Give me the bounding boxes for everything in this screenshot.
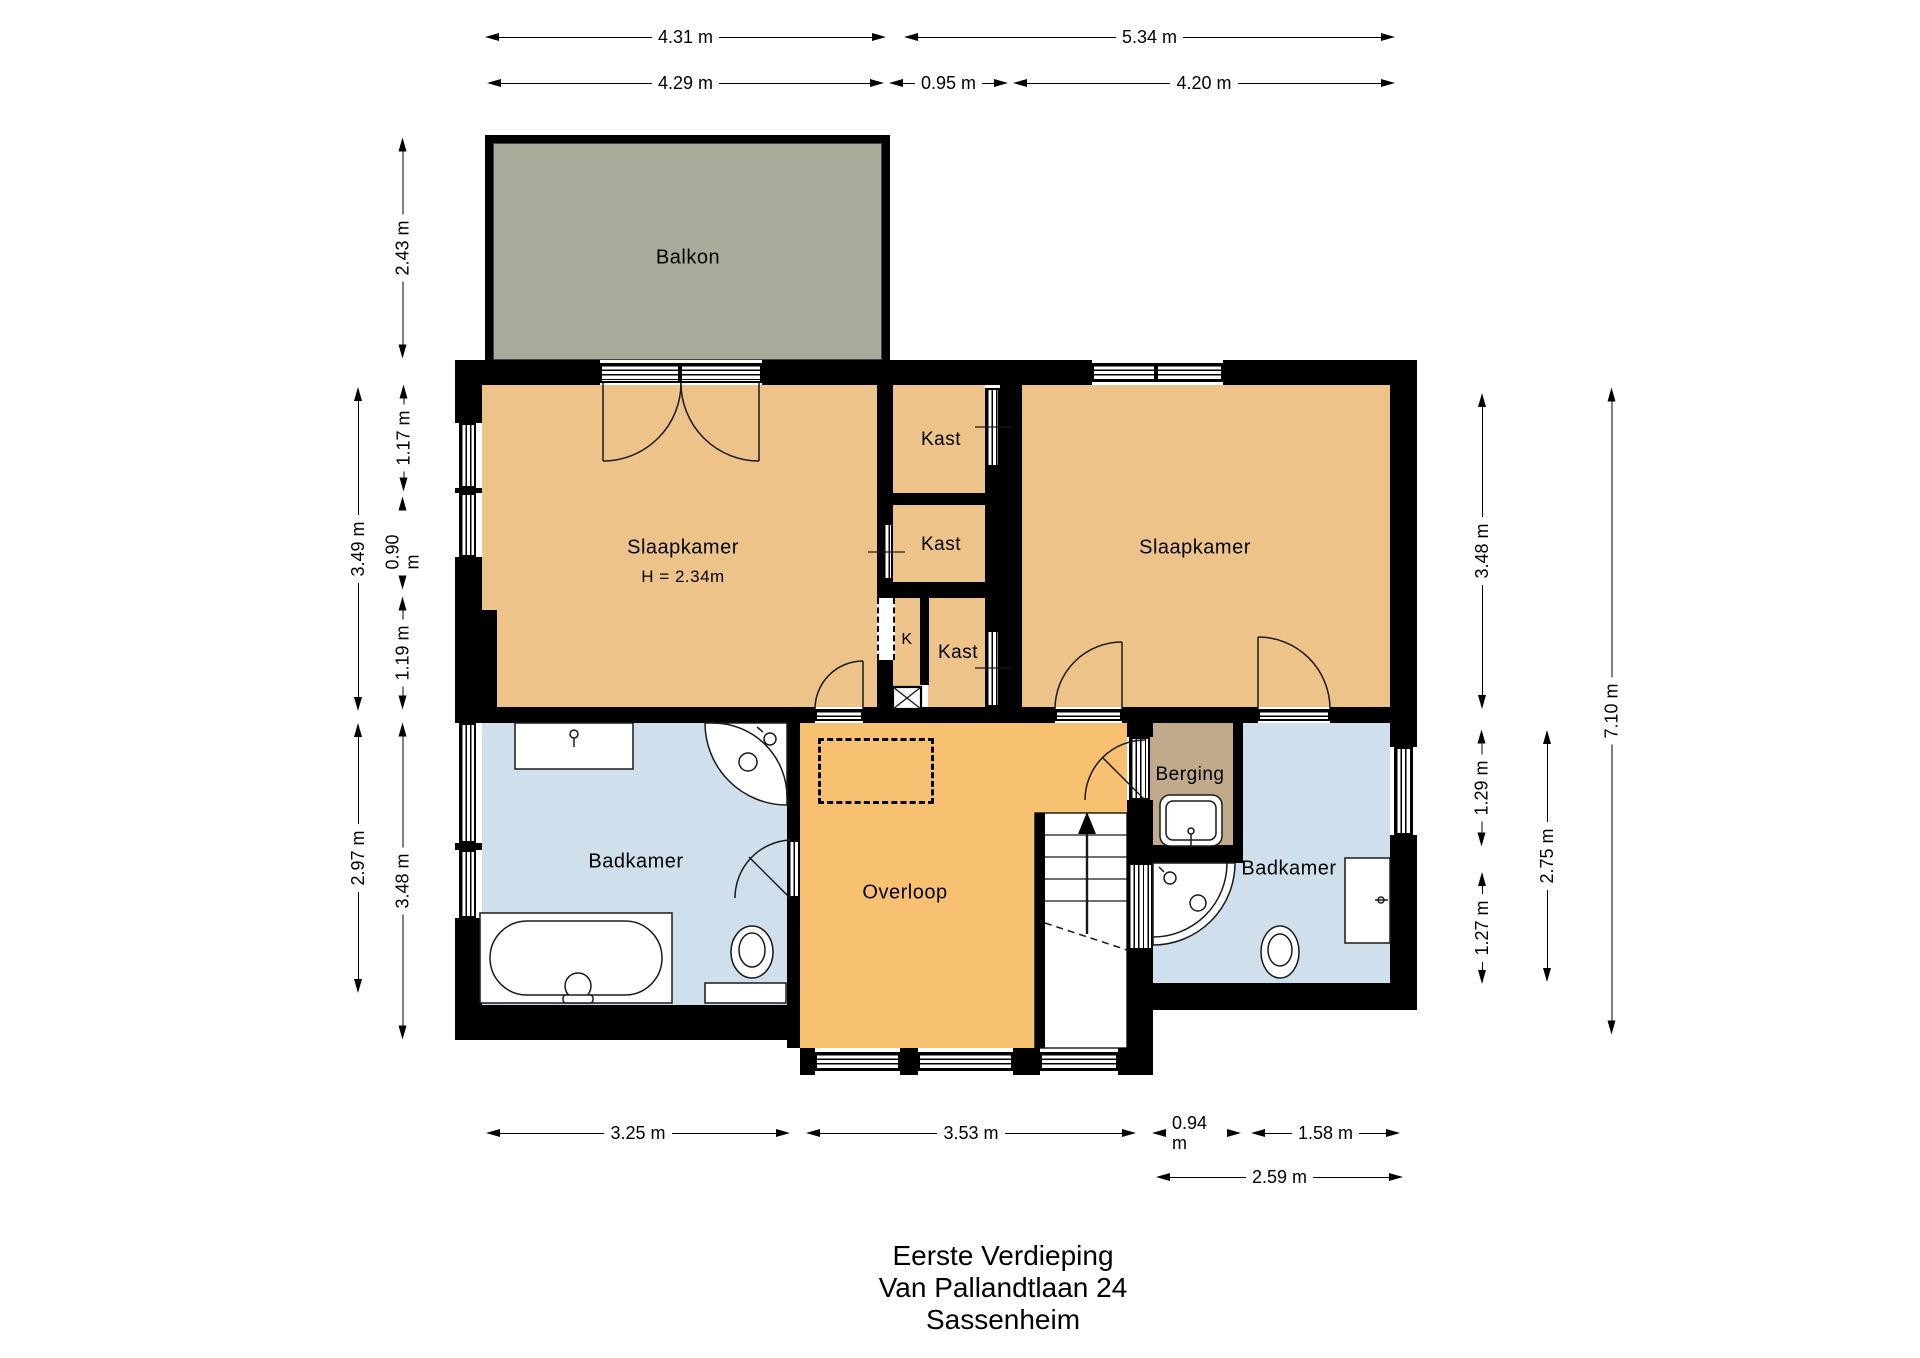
title-line-floor: Eerste Verdieping [879, 1240, 1128, 1272]
label-kast-2: Kast [921, 534, 961, 556]
label-berging: Berging [1156, 764, 1225, 786]
title-line-address: Van Pallandtlaan 24 [879, 1272, 1128, 1304]
dim-left-1-19: 1.19 m [393, 597, 413, 710]
title-line-city: Sassenheim [879, 1304, 1128, 1336]
corner-shower-left [705, 723, 787, 805]
berging-sink [1160, 795, 1222, 846]
balcony-doors [603, 383, 759, 461]
dim-right-1-27: 1.27 m [1472, 872, 1492, 984]
floorplan-sheet: Balkon Slaapkamer H = 2.34m Slaapkamer K… [0, 0, 1920, 1358]
label-slaapkamer-left: Slaapkamer [627, 537, 739, 560]
washstand [515, 723, 633, 769]
dim-right-3-48: 3.48 m [1472, 393, 1492, 709]
dim-bottom-1-58: 1.58 m [1251, 1123, 1400, 1143]
dim-top-0-95: 0.95 m [889, 73, 1008, 93]
label-overloop: Overloop [862, 882, 947, 905]
door-slaapkamer-left [815, 661, 863, 709]
door-slaapkamer-right-2 [1258, 637, 1330, 709]
label-slaapkamer-right: Slaapkamer [1139, 537, 1251, 560]
dim-left-3-48: 3.48 m [393, 723, 413, 1040]
label-slaapkamer-left-height: H = 2.34m [641, 567, 724, 587]
label-badkamer-right: Badkamer [1241, 858, 1336, 881]
dim-right-7-10: 7.10 m [1602, 388, 1622, 1035]
label-kast-3: Kast [938, 642, 978, 664]
label-k: K [901, 631, 912, 649]
plan-title: Eerste Verdieping Van Pallandtlaan 24 Sa… [879, 1240, 1128, 1336]
washbasin-right [1345, 858, 1390, 943]
door-badkamer-left [735, 840, 790, 898]
dim-top-4-31: 4.31 m [485, 27, 886, 47]
dim-top-5-34: 5.34 m [904, 27, 1395, 47]
dim-right-2-75: 2.75 m [1537, 730, 1557, 982]
dim-left-3-49: 3.49 m [348, 387, 368, 711]
staircase [1035, 812, 1127, 1048]
dim-left-0-90: 0.90 m [393, 497, 413, 590]
dim-bottom-0-94: 0.94 m [1152, 1123, 1241, 1143]
dim-left-2-43: 2.43 m [393, 138, 413, 359]
dim-left-1-17: 1.17 m [394, 385, 414, 492]
door-berging [1085, 740, 1145, 800]
door-slaapkamer-right-1 [1055, 642, 1122, 709]
label-balkon: Balkon [656, 247, 720, 270]
label-badkamer-left: Badkamer [588, 851, 683, 874]
toilet-left [705, 926, 786, 1003]
label-kast-1: Kast [921, 429, 961, 451]
fixtures-layer [0, 0, 1920, 1358]
dim-left-2-97: 2.97 m [348, 723, 368, 993]
bathtub [480, 913, 672, 1003]
dim-top-4-29: 4.29 m [487, 73, 884, 93]
dim-bottom-2-59: 2.59 m [1156, 1167, 1403, 1187]
toilet-right [1261, 926, 1299, 978]
dim-bottom-3-53: 3.53 m [806, 1123, 1136, 1143]
dim-bottom-3-25: 3.25 m [486, 1123, 790, 1143]
corner-shower-right [1153, 863, 1235, 945]
dim-top-4-20: 4.20 m [1013, 73, 1395, 93]
shaft-x-box [893, 687, 921, 709]
dim-right-1-29: 1.29 m [1472, 730, 1492, 847]
